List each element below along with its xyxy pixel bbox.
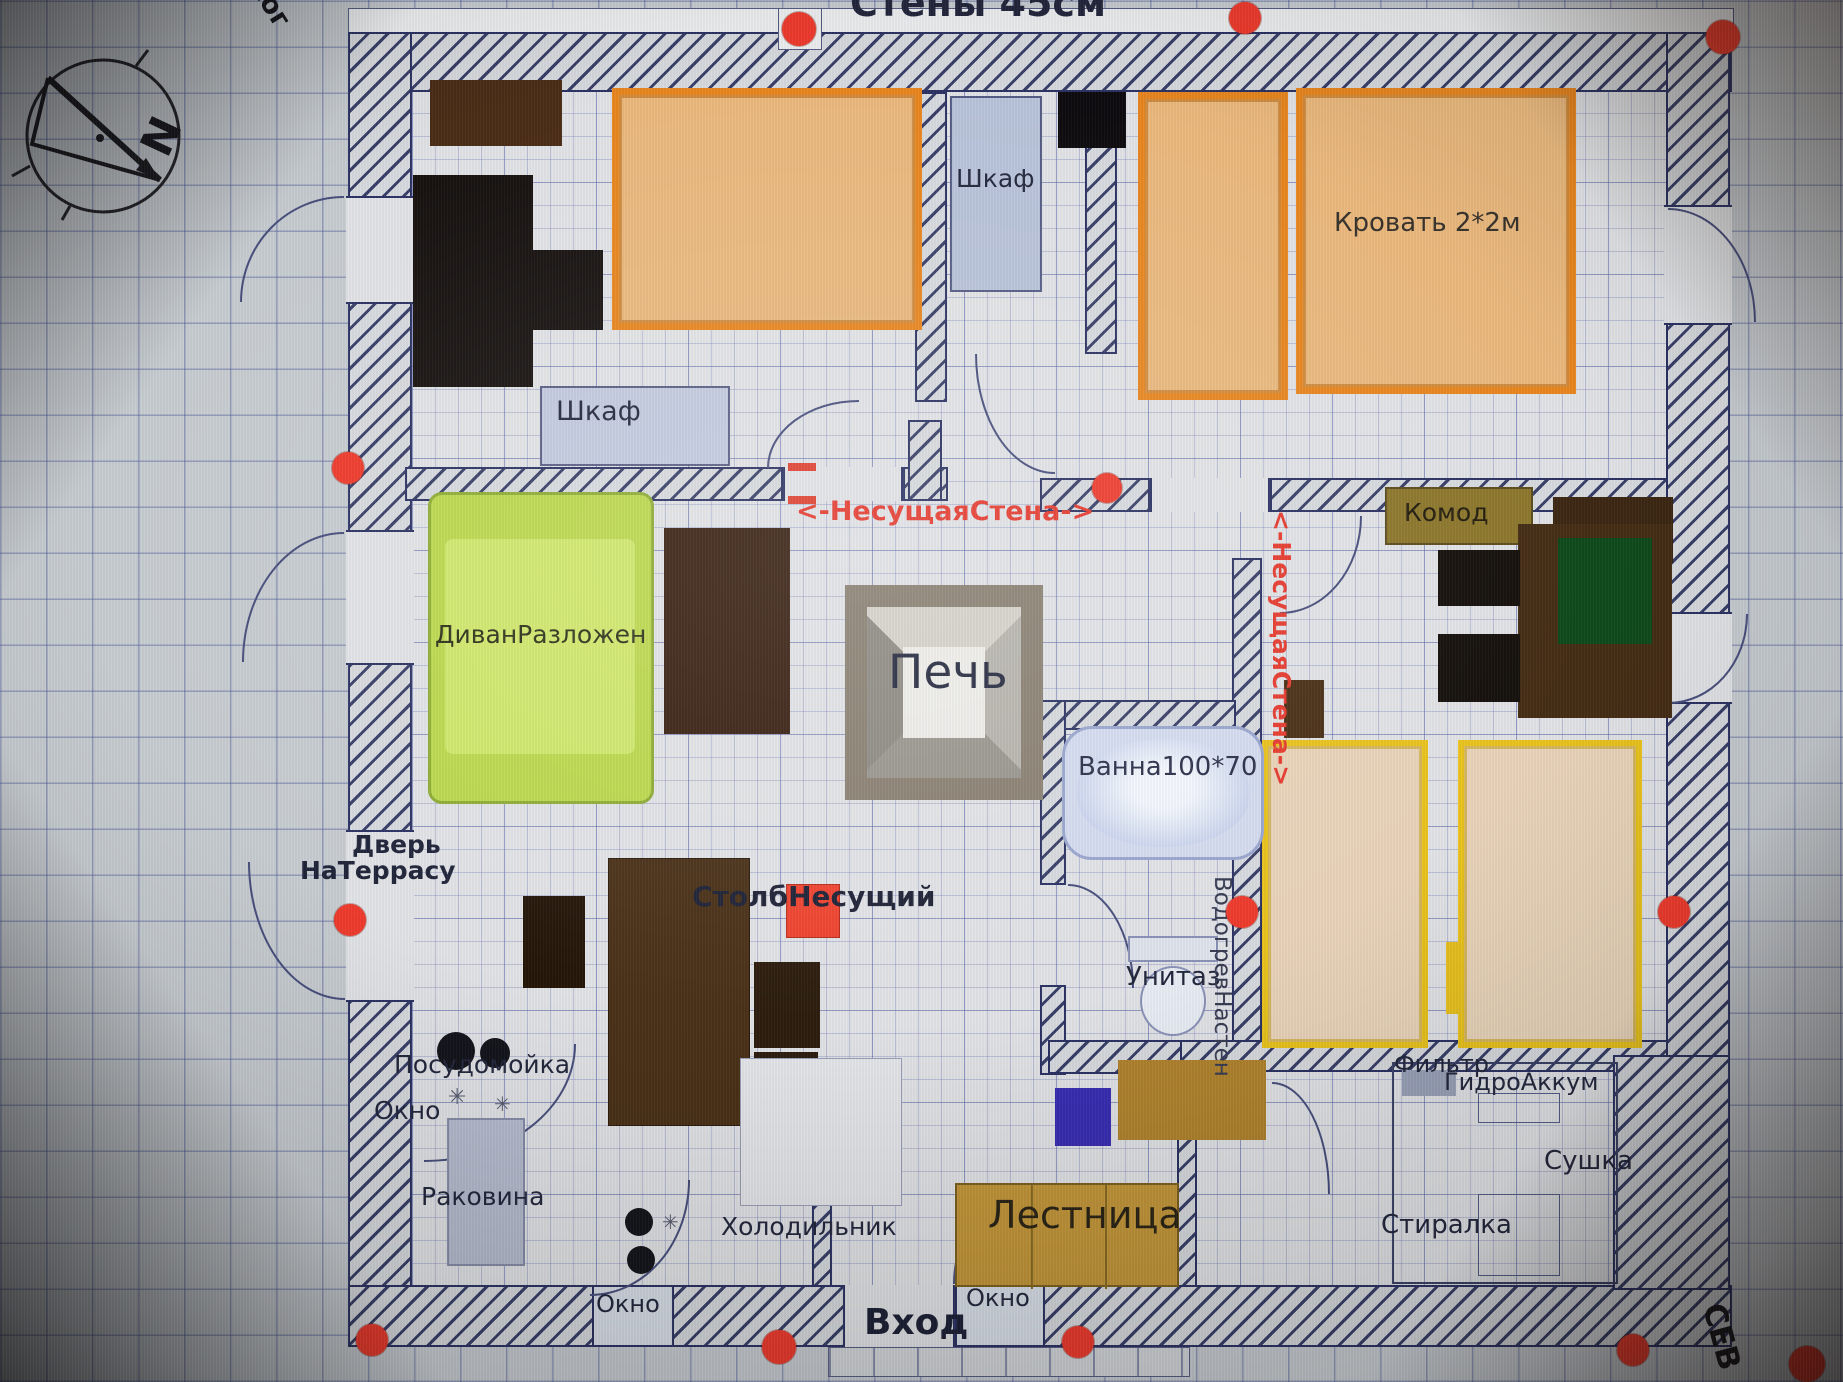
marker-dot[interactable] (1658, 896, 1690, 928)
sparkle-icon: ✳ (448, 1086, 466, 1109)
marker-dot[interactable] (1229, 2, 1261, 34)
tan-cabinet-hall[interactable] (1118, 1060, 1266, 1140)
window-label-entrance: Окно (966, 1286, 1030, 1311)
kitchen-dot-1 (625, 1208, 653, 1236)
fridge-box[interactable] (740, 1058, 902, 1206)
chair-rightroom-2[interactable] (1438, 634, 1520, 702)
terrace-door-label-2: НаТеррасу (300, 858, 456, 884)
sink-label: Раковина (421, 1184, 544, 1210)
wardrobe1-label: Шкаф (556, 398, 641, 426)
window-label-kitchen: Окно (374, 1098, 440, 1124)
marker-dot[interactable] (332, 452, 364, 484)
blue-box[interactable] (1055, 1088, 1111, 1146)
stairs-label: Лестница (988, 1196, 1182, 1236)
entrance-steps (828, 1347, 1190, 1377)
marker-dot[interactable] (782, 12, 816, 46)
terrace-door-label-1: Дверь (352, 832, 441, 858)
bed-yellow-left[interactable] (1262, 740, 1428, 1048)
chair-living-2[interactable] (754, 962, 820, 1048)
marker-dot[interactable] (356, 1324, 388, 1356)
fridge-label: Холодильник (721, 1214, 897, 1240)
bed-2x2-bedroom2[interactable] (1296, 88, 1576, 394)
black-block-hall[interactable] (1058, 92, 1126, 148)
marker-dot[interactable] (1617, 1334, 1649, 1366)
wardrobe-dark-bedroom1[interactable] (413, 175, 533, 387)
desk-green-insert (1558, 538, 1652, 644)
load-bearing-wall-v-label: <-НесущаяСтена-> (1268, 510, 1294, 786)
marker-dot[interactable] (1789, 1346, 1825, 1382)
sparkle-icon: ✳ (494, 1094, 511, 1115)
bathtub[interactable] (1062, 726, 1264, 860)
stove-label: Печь (888, 648, 1008, 697)
wardrobe2-label: Шкаф (956, 166, 1035, 192)
pillar-label: СтолбНесущий (692, 882, 936, 911)
sofa-label: ДиванРазложен (435, 622, 646, 648)
sparkle-icon: ✳ (662, 1212, 679, 1233)
toilet-label: Унитаз (1126, 964, 1221, 991)
marker-dot[interactable] (1062, 1326, 1094, 1358)
load-bearing-wall-h-label: <-НесущаяСтена-> (796, 498, 1094, 526)
wall-thickness-title: Стены 45см (850, 0, 1106, 24)
washer-label: Стиралка (1381, 1212, 1512, 1239)
marker-dot[interactable] (334, 904, 366, 936)
kitchen-dot-2 (627, 1246, 655, 1274)
chair-rightroom-1[interactable] (1438, 550, 1520, 606)
bed-small-bedroom2[interactable] (1138, 92, 1288, 400)
bed-yellow-right[interactable] (1458, 740, 1642, 1048)
bath-label: Ванна100*70 (1078, 754, 1257, 781)
door-opening-left-top (346, 196, 414, 304)
window-label-bottom-left: Окно (596, 1292, 660, 1317)
cabinet-bedroom1[interactable] (430, 80, 562, 146)
marker-dot[interactable] (1226, 896, 1258, 928)
floorplan-photo: N юг СЕВ Стены 45см Шкаф Шкаф Кровать 2*… (0, 0, 1843, 1382)
bed-bedroom1[interactable] (612, 88, 922, 330)
tv-stand[interactable] (664, 528, 790, 734)
dishwasher-label: Посудомойка (394, 1052, 570, 1078)
dryer-label: Сушка (1544, 1148, 1633, 1175)
wall-pillar-junction (908, 420, 942, 501)
marker-dot[interactable] (1706, 20, 1740, 54)
marker-dot[interactable] (762, 1330, 796, 1364)
dresser-label: Комод (1404, 500, 1489, 526)
bed-2x2-label: Кровать 2*2м (1334, 210, 1521, 237)
wardrobe-box-hall[interactable] (950, 96, 1042, 292)
entrance-label: Вход (864, 1304, 968, 1342)
toilet-tank (1128, 936, 1218, 962)
bed-yellow-tab (1446, 942, 1460, 1014)
marker-dot[interactable] (1092, 473, 1122, 503)
chair-living-1[interactable] (523, 896, 585, 988)
hydro-accumulator-label: ГидроАккум (1444, 1070, 1598, 1095)
door-opening-rightroom (1150, 478, 1270, 512)
wardrobe-dark-extension[interactable] (533, 250, 603, 330)
hydro-accumulator-unit[interactable] (1478, 1093, 1560, 1123)
door-opening-left-mid (346, 530, 414, 665)
